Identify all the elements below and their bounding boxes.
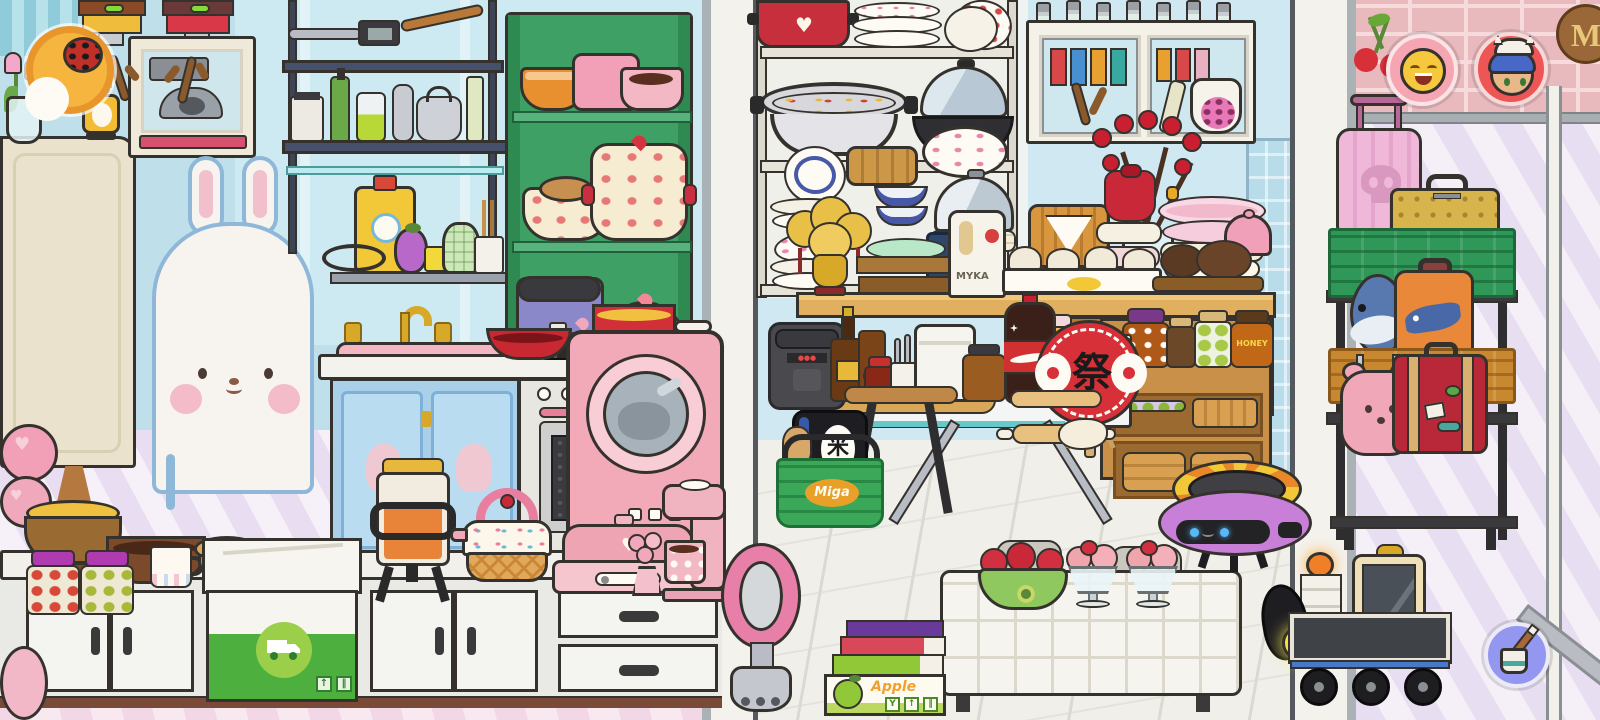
apple-leaf [849,675,861,682]
grape-jar[interactable] [1194,310,1232,368]
coffee-base [662,588,726,602]
sticker-teal [1437,421,1461,432]
jar-body: HONEY [1230,322,1274,368]
door-handle [435,627,444,655]
egg-tray [1002,268,1162,294]
gold-vase [812,254,848,288]
cart-wheel[interactable] [1352,668,1390,706]
bunny-cheek [268,384,300,414]
oil-bottle[interactable] [466,76,484,142]
coffee-maker[interactable] [662,484,728,606]
coffee-surface [629,73,673,85]
shelf-board [282,140,508,154]
paw-mug[interactable] [664,540,706,584]
paint-bucket-icon [1500,648,1528,674]
eggplant-holder[interactable] [394,228,428,274]
spoon [894,338,901,364]
berry-cluster [1092,128,1112,148]
spray-bottle[interactable] [356,92,386,142]
drink-dispenser[interactable] [364,458,460,602]
juice-carton [1156,48,1172,82]
honey-label: HONEY [1236,339,1267,348]
spoon [904,334,911,364]
cup [474,236,504,274]
brand-oval: Miga [805,479,859,507]
juice-carton [1110,48,1127,86]
cloche-knob [967,169,985,179]
cooker-lid [517,276,601,302]
oven-knob[interactable] [537,387,551,401]
cat-hat [1494,38,1534,56]
bunny-eye [198,368,207,379]
hotpot-broth-split [772,92,896,114]
skull-eye [1369,177,1378,188]
juice-carton [1090,48,1107,86]
robot-face-band [1176,520,1270,544]
door-handle [467,627,476,655]
bear-nose [1377,417,1385,424]
cat-ear [1493,35,1503,45]
box-icon-up: ↑ [316,676,332,692]
wooden-brush[interactable] [400,3,485,32]
cabinet-door[interactable] [454,590,538,692]
wood-tray [856,256,956,274]
handle-bar [1394,104,1402,130]
sticker-white [1424,401,1446,420]
sticker-green [1445,385,1461,397]
stand-leg [431,565,450,602]
trivet[interactable] [322,244,386,272]
clasp [1433,193,1461,199]
saucepan-contents [597,309,671,321]
strawberry-top [1140,540,1158,556]
apple-crate-stack[interactable]: Apple Y ↑ ‖ [824,614,948,716]
robot-eye [1190,528,1199,537]
pink-teacup-pot[interactable] [620,67,684,111]
cart-wheel[interactable] [1404,668,1442,706]
juice-carton [1175,48,1191,82]
flower-plate-stack[interactable] [852,2,944,48]
bunny-eye [264,368,273,379]
door-handle [123,627,132,655]
delivery-cart[interactable] [1256,542,1452,708]
truck-badge [256,622,312,678]
rack-leg [1344,528,1354,550]
keep-dry-icon: ‖ [923,697,938,712]
antler-stub [194,61,210,81]
berry-cluster [1182,132,1202,152]
juice-carton [1194,48,1210,82]
red-dot-plates[interactable] [944,0,1016,50]
juicer-body [166,14,230,34]
wood-tray-stack[interactable] [856,238,958,296]
masher-tool[interactable] [288,28,362,40]
wheat-art [959,221,973,255]
stand-leg [375,565,394,602]
flap-fold [223,543,343,555]
tree-base [814,286,846,296]
red-logo-dot [985,229,999,243]
bunny-inner-ear [253,170,267,218]
pot-handle [747,13,759,25]
pickle-jar[interactable] [80,550,134,616]
bread-board[interactable] [1152,244,1268,298]
fan-face: 祭 [1036,320,1142,426]
tier [1096,222,1162,244]
strawberry-top [1080,540,1098,556]
dome-knob [1243,209,1255,219]
cutting-paddle [1152,276,1264,292]
wheel-hub [1314,682,1324,692]
bamboo-steamer-small[interactable] [846,146,918,186]
white-flower-plate[interactable] [922,126,1008,178]
steel-kettle[interactable] [416,96,462,142]
flour-bag-label: MYKA [956,271,989,282]
green-bowl [978,568,1068,610]
dryer-glass [603,371,689,457]
mug-body [150,546,192,588]
jar-lid [294,92,320,100]
petal-medallion [1035,353,1071,393]
kettle-handle [426,86,452,102]
cherry [1354,48,1378,72]
cup-foot [1076,600,1110,608]
eggplant-leaf [405,223,421,233]
fan-button[interactable] [741,697,750,706]
character-button-smiley[interactable] [1386,34,1458,106]
dispenser-spigot[interactable] [406,564,418,582]
shark-print-eye [1412,315,1419,322]
tassel [798,248,802,274]
bunny-mouth [226,384,242,394]
juice-carton [1070,48,1087,86]
blue-rice-bowls[interactable] [874,186,932,228]
box-flaps [202,538,362,594]
coffee-surface [669,545,699,553]
shelf-board [512,241,692,253]
player-avatar-button[interactable] [26,26,114,114]
kitchen-timer[interactable] [358,20,400,46]
dough[interactable] [1058,418,1108,450]
sakura-bloom [636,546,654,564]
faucet-tap[interactable] [344,322,362,344]
antler-small [1070,81,1092,126]
shark-eye [1358,304,1366,312]
lower-shelf-board [330,272,508,284]
strawberry-bowl[interactable] [978,542,1070,612]
antler-stub [163,64,182,85]
fan-base [730,666,792,712]
bladeless-fan[interactable] [720,546,804,716]
dryer-door-ring[interactable] [586,354,706,474]
kid-eye [1504,78,1510,86]
stand-ring [370,502,456,540]
hotpot-handle [750,96,764,114]
drawer-handle [619,665,659,676]
knot [1120,164,1142,178]
cabinet-door[interactable] [370,590,454,692]
crate-red [840,636,946,656]
dessert-cup[interactable] [1064,540,1122,610]
laundry [618,402,670,440]
trunk-strap [1407,357,1420,451]
red-vintage-trunk[interactable] [1392,342,1490,456]
smiley-face-icon [1400,48,1446,94]
berry-cluster [1162,116,1182,136]
pot-handle [683,184,697,206]
pink-ball[interactable] [0,646,48,720]
pan-bowl [486,328,572,360]
kid-eye [1520,78,1526,86]
fan-button[interactable] [771,697,780,706]
lid-circle [679,479,711,491]
bucket-band [1503,661,1525,666]
steamed-bun-tray[interactable] [1002,246,1166,296]
robot-eye [1220,528,1229,537]
this-way-up-icon: ↑ [904,697,919,712]
bottle-label [836,360,860,382]
power-light [190,4,210,13]
avocado-sticker [1017,585,1035,603]
shelf-board [512,111,692,123]
heart-mark: ♥ [795,13,813,37]
fridge-door-line [13,153,121,453]
white-jar[interactable] [290,96,324,142]
decorate-button[interactable] [1484,622,1550,688]
yolk [1067,277,1101,291]
pot-handle [581,184,595,206]
smiley-eye [1427,65,1437,72]
heart-mark: ♥ [14,434,30,455]
cart-bed [1290,614,1450,662]
sign-letter: M [1571,17,1600,53]
shark-print [1403,301,1462,335]
slider-dot [601,576,609,584]
apple-box: Apple Y ↑ ‖ [824,674,946,716]
lid-knob [957,59,975,69]
cherry-knob [500,494,515,509]
icecream-kettle[interactable] [458,488,560,592]
box-icon-pause: ‖ [336,676,352,692]
juice-carton [1050,48,1067,86]
red-knot-pouch [1104,170,1156,222]
drawer-handle [619,611,659,622]
jar-body [80,565,134,615]
pan-contents [493,333,563,343]
door-handle [91,627,100,655]
jar-body [26,565,80,615]
petal-center [1047,367,1059,379]
glass-shine [655,376,683,398]
pink-base [139,135,247,149]
glass-cup [1068,566,1118,594]
character-button-kid[interactable] [1474,32,1548,106]
bowl [874,186,928,208]
trunk-body [1392,354,1488,454]
kitchen-scene: M [0,0,1600,720]
bowl [876,206,928,226]
robot-leg [1230,556,1238,572]
green-bottle[interactable] [330,76,350,142]
berry-cluster [1114,114,1134,134]
berry-cluster [1174,158,1192,176]
miga-basket[interactable]: Miga [776,450,886,530]
spice-jar[interactable] [1166,316,1196,368]
petal-center [1123,367,1135,379]
stool-leg [924,402,952,514]
pepper-grinder[interactable] [392,84,414,142]
apple-box-label: Apple [871,679,916,695]
glass-cup [1128,566,1178,594]
kettle-top [462,520,552,556]
bear-eye [1365,405,1372,413]
cart-wheel[interactable] [1300,668,1338,706]
trunk-strap [1461,357,1474,451]
berry-cluster [1138,110,1158,130]
smiley-eye [1410,65,1420,72]
utensil-cup[interactable] [474,200,506,274]
shelf-board [282,60,504,73]
truck-icon [266,638,302,662]
faucet-tap[interactable] [434,322,452,344]
lantern-base [86,132,116,140]
fragile-icon: Y [885,697,900,712]
bunny-silhouette [456,444,492,492]
jug-pump [373,175,397,191]
bunny-cheek [170,384,202,414]
green-apple-art [833,679,863,709]
rye-loaf [1196,240,1252,280]
red-heart-pot[interactable]: ♥ [756,0,850,48]
delivery-box[interactable]: ↑ ‖ [196,538,368,704]
cooker-display: ●●● [787,353,827,363]
tulip-flower [4,52,22,74]
basket-brand-label: Miga [814,485,849,500]
skull-jaw [1371,193,1391,203]
antler-stub [123,64,141,83]
flour-bag[interactable]: MYKA [948,210,1006,298]
cup-foot [1136,600,1170,608]
jar-body [1166,326,1196,368]
polka-pot[interactable] [590,143,688,241]
basket-body: Miga [776,458,884,528]
sakura-stand [632,566,662,596]
bunny-inner-ear [199,170,213,218]
timer-screen [368,28,392,40]
glass-shelf [286,166,504,175]
bamboo-steamer [1192,398,1258,428]
coffee-head [662,484,726,520]
smiley-mouth [1415,73,1432,85]
rolling-pin[interactable] [1010,390,1102,408]
robot-vent [1278,522,1302,538]
heart-knob [631,133,649,151]
rack-leg [1486,528,1496,550]
fan-button[interactable] [756,697,765,706]
wheel-hub [1418,682,1428,692]
bottle-neck [337,68,345,80]
wok-lid [920,66,1008,118]
wheel-hub [1366,682,1376,692]
power-light [104,4,124,13]
antler-branch [176,56,197,105]
kettle-spout [450,528,468,542]
fridge-handle [166,454,175,510]
robot-smile [1202,530,1214,537]
ladybug-head [63,37,103,73]
antler-decor[interactable] [158,52,214,110]
honey-jar[interactable]: HONEY [1230,310,1274,368]
jar-body [1194,321,1232,368]
crate-green [832,654,944,676]
cooker-door [793,369,821,391]
stool-seat [844,386,958,404]
plate [854,30,940,48]
petal-medallion [1111,353,1147,393]
kettle-waffle-base [466,552,548,582]
handle-bar [1356,104,1364,130]
pickle-jar[interactable] [26,550,80,616]
gold-hinge [421,411,431,427]
drawer[interactable] [558,644,718,692]
wood-tray [858,276,954,294]
white-egg [25,77,69,121]
wall-shelf-unit[interactable] [282,0,508,300]
fan-ring [724,546,798,646]
cream-fridge[interactable] [0,136,136,468]
